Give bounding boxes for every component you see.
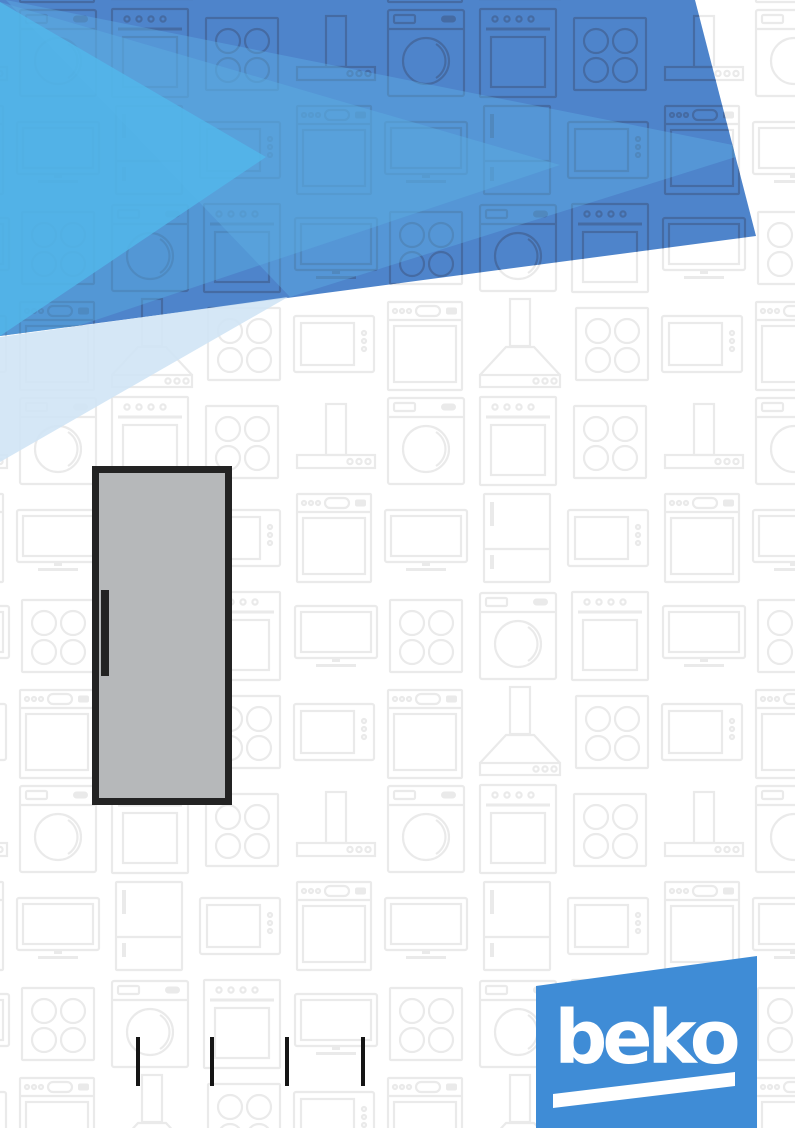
beko-logo: beko — [536, 956, 757, 1128]
registration-mark — [285, 1037, 289, 1086]
registration-mark — [361, 1037, 365, 1086]
refrigerator-handle-icon — [101, 590, 109, 676]
registration-mark — [210, 1037, 214, 1086]
manual-cover-page: beko — [0, 0, 795, 1128]
logo-wordmark: beko — [554, 995, 737, 1081]
registration-mark — [136, 1037, 140, 1086]
refrigerator-illustration — [92, 466, 232, 805]
